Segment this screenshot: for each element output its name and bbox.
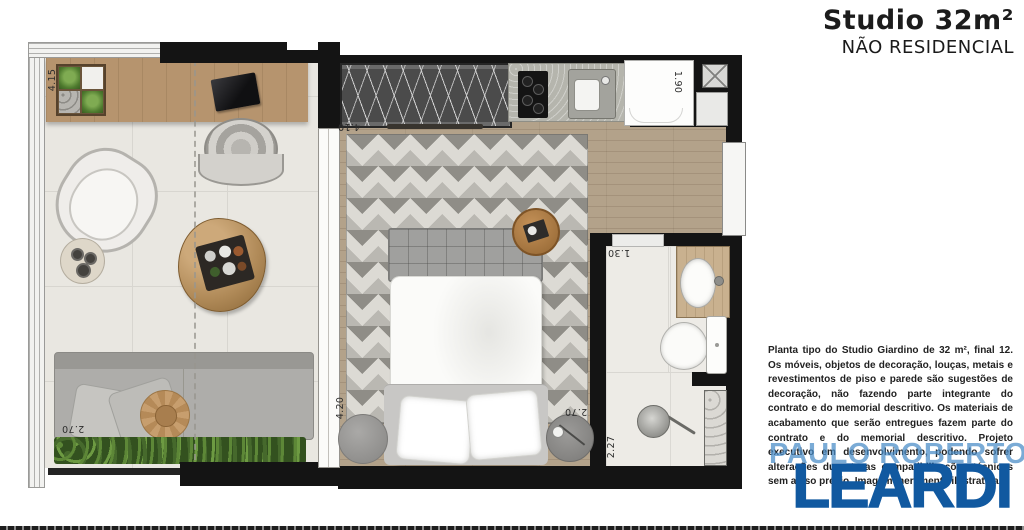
- leardi-logo: LEARDI: [792, 456, 1011, 518]
- entry-door: [722, 142, 746, 236]
- closet-track: [387, 124, 483, 129]
- wicker-chair-base: [198, 154, 284, 186]
- tray-item: [203, 249, 216, 262]
- section-dashed-line: [194, 60, 196, 460]
- tray-item: [236, 261, 247, 272]
- plant-pot: [81, 90, 104, 114]
- dim-bedroom-width: 2.70: [559, 405, 593, 417]
- burner: [522, 95, 533, 106]
- tray-item: [209, 266, 221, 278]
- duct-shaft: [702, 64, 728, 88]
- decor-tray-table: [512, 208, 560, 256]
- tray-item: [221, 261, 237, 277]
- cup: [71, 248, 84, 261]
- wall-divider-top: [318, 42, 340, 130]
- dim-bedroom-length: 4.20: [335, 391, 347, 425]
- bed-pillow: [395, 395, 474, 465]
- dim-kitchen-wall: 4.10: [332, 120, 366, 132]
- dim-bathroom-width: 1.30: [602, 246, 636, 258]
- terrace-railing-left: [28, 42, 45, 488]
- shower-bench: [704, 390, 727, 466]
- plant-hedge: [54, 437, 306, 464]
- appliance-niche: [624, 60, 694, 126]
- burner: [533, 103, 544, 114]
- dim-appliance-niche: 1.90: [671, 65, 683, 99]
- wall-top-terrace: [160, 42, 287, 63]
- book: [523, 219, 549, 243]
- dim-terrace-depth: 2.70: [56, 422, 90, 434]
- straw-hat: [140, 390, 190, 440]
- wardrobe-closet: [340, 63, 512, 128]
- planter-box: [56, 64, 106, 116]
- gravel-pot: [58, 90, 81, 114]
- tray-item: [232, 245, 244, 257]
- kitchen-sink: [568, 69, 616, 119]
- bed-pillow: [465, 389, 542, 461]
- floorplan: 4.15 2.70 4.10 4.20 2.70 1.90 1.30 2.27: [28, 38, 742, 490]
- plant-pot: [58, 66, 81, 90]
- faucet: [714, 276, 724, 286]
- unit-title: Studio 32m²: [823, 6, 1014, 36]
- white-pot: [81, 66, 104, 90]
- wall-shower-separator: [692, 372, 728, 386]
- dim-bathroom-length: 2.27: [606, 430, 618, 464]
- toilet: [660, 322, 708, 370]
- burner: [522, 76, 533, 87]
- bottom-edge-strip: [0, 526, 1024, 530]
- terrace-railing-top: [28, 42, 167, 58]
- lamp: [552, 426, 564, 438]
- side-table: [60, 238, 105, 284]
- bedside-table: [546, 414, 594, 462]
- tray-item: [218, 244, 233, 259]
- burner: [533, 84, 544, 95]
- unit-subtitle: NÃO RESIDENCIAL: [842, 38, 1014, 58]
- service-niche: [696, 92, 728, 126]
- cooktop: [518, 71, 548, 118]
- toilet-cabinet: [706, 316, 727, 374]
- wall-bottom: [338, 466, 742, 489]
- terrace-wall-bottom: [48, 468, 180, 475]
- page: { "header": { "title": "Studio 32m²", "s…: [0, 0, 1024, 530]
- shower-head: [637, 405, 670, 438]
- wall-bottom-terrace: [180, 462, 340, 486]
- cup: [76, 263, 91, 278]
- bath-grid-line: [606, 372, 692, 373]
- dim-terrace-width: 4.15: [47, 63, 59, 97]
- bathroom-sink: [680, 258, 716, 308]
